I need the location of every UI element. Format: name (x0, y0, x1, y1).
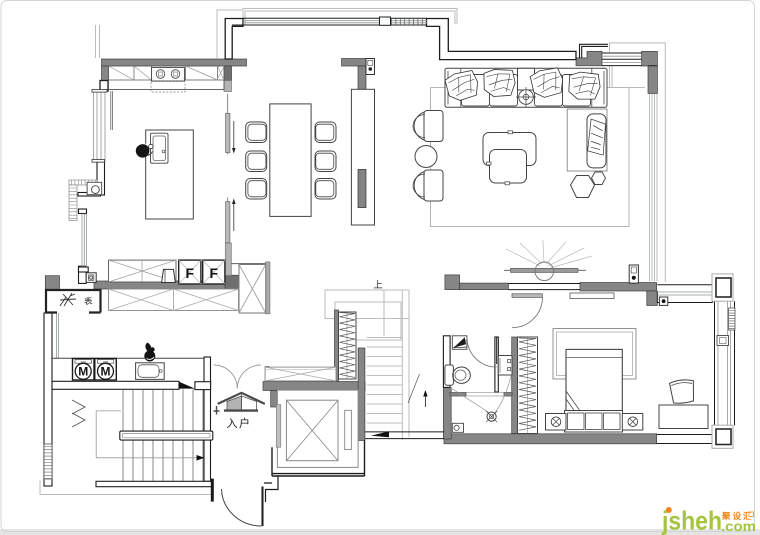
svg-text:M: M (101, 365, 111, 379)
svg-text:F: F (186, 265, 195, 281)
svg-text:M: M (78, 365, 88, 379)
svg-text:F: F (210, 265, 219, 281)
svg-text:入户: 入户 (227, 416, 252, 430)
svg-text:.com: .com (721, 519, 756, 534)
svg-text:表: 表 (84, 296, 94, 307)
